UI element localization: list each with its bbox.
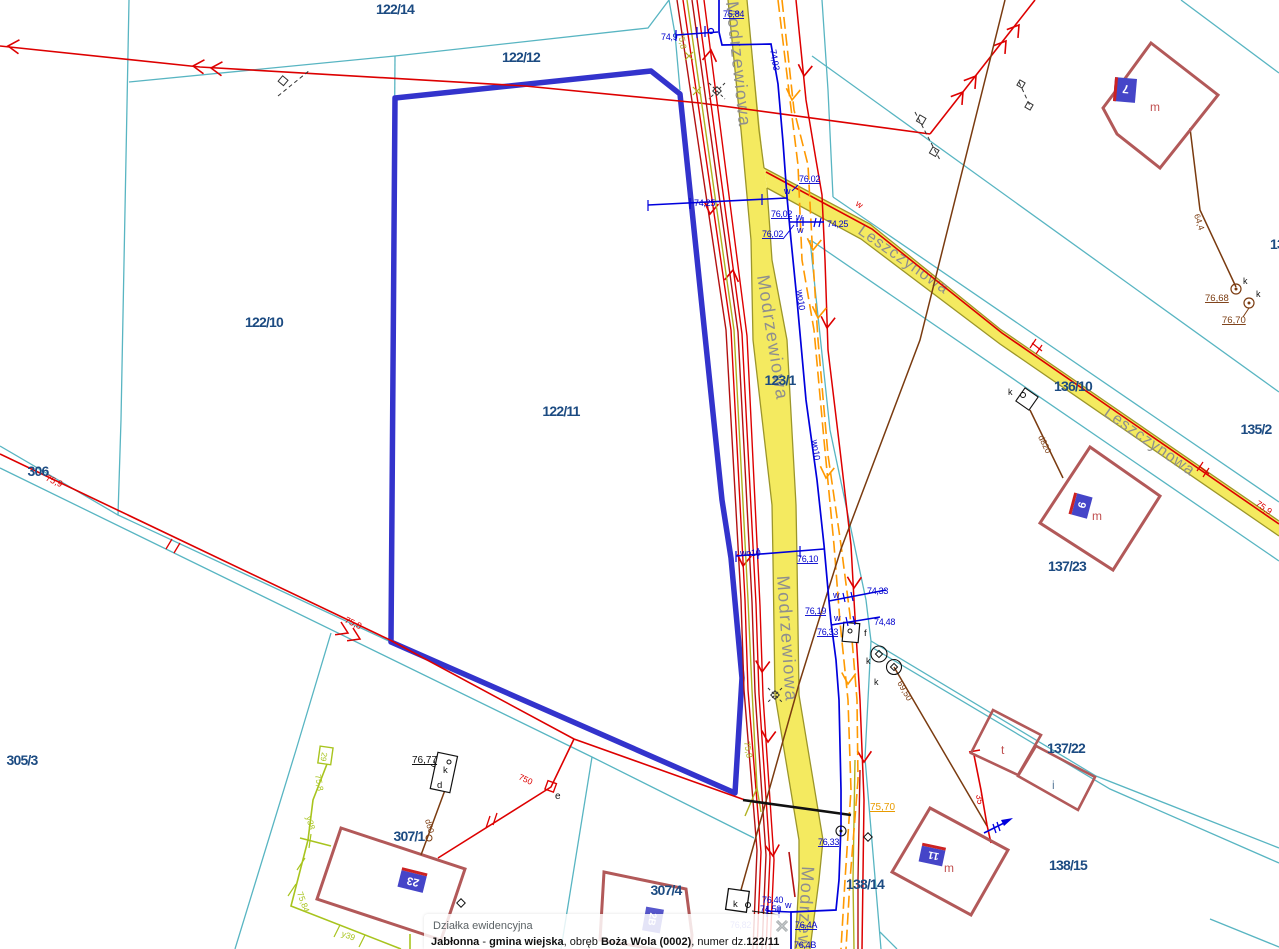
svg-text:76,68: 76,68 [1205,293,1229,304]
svg-text:74,48: 74,48 [874,617,895,627]
svg-text:76,33: 76,33 [817,627,838,637]
svg-text:76,02: 76,02 [799,174,820,184]
svg-text:w: w [833,613,841,623]
svg-text:k: k [1256,289,1261,299]
svg-text:74,25: 74,25 [694,198,715,208]
svg-text:m: m [944,861,954,875]
svg-text:w: w [832,590,840,600]
svg-text:k: k [443,765,448,776]
svg-text:e: e [555,791,561,802]
svg-text:305/3: 305/3 [6,752,38,768]
svg-text:w: w [783,186,791,196]
svg-text:136/10: 136/10 [1054,378,1093,394]
svg-text:306: 306 [28,463,50,479]
svg-text:74,50: 74,50 [760,904,781,914]
svg-text:123/1: 123/1 [764,372,796,388]
svg-text:w: w [795,212,803,222]
svg-text:w: w [784,900,792,910]
svg-text:76,4B: 76,4B [794,940,816,949]
svg-text:74,25: 74,25 [827,219,848,229]
svg-text:137/22: 137/22 [1047,740,1086,756]
svg-text:138/14: 138/14 [846,876,885,892]
svg-text:13: 13 [1270,236,1279,252]
svg-text:f: f [864,628,867,639]
svg-text:76,33: 76,33 [818,837,839,847]
svg-text:w: w [796,225,804,235]
svg-text:i: i [1052,778,1055,792]
svg-text:76,19: 76,19 [805,606,826,616]
svg-text:74,9: 74,9 [661,32,678,42]
svg-text:307/1: 307/1 [393,828,425,844]
svg-text:75,70: 75,70 [870,802,895,813]
svg-text:k: k [874,677,879,687]
svg-text:k: k [733,899,738,910]
svg-text:138/15: 138/15 [1049,857,1088,873]
svg-text:122/11: 122/11 [542,403,580,419]
svg-text:76,10: 76,10 [797,554,818,564]
svg-text:d: d [437,780,442,791]
svg-text:35: 35 [974,794,986,806]
svg-text:76,4A: 76,4A [795,920,817,930]
svg-text:122/10: 122/10 [245,314,284,330]
svg-text:76,70: 76,70 [1222,315,1246,326]
svg-text:135/2: 135/2 [1240,421,1272,437]
svg-text:76,02: 76,02 [771,209,792,219]
svg-text:75,84: 75,84 [723,9,744,19]
svg-text:76,77: 76,77 [412,755,437,766]
svg-text:122/14: 122/14 [376,1,415,17]
svg-text:k: k [1008,387,1013,397]
svg-text:m: m [1092,509,1102,523]
svg-text:122/12: 122/12 [502,49,541,65]
svg-text:k: k [1243,276,1248,286]
svg-text:m: m [1150,100,1160,114]
svg-text:74,33: 74,33 [867,586,888,596]
svg-text:76,02: 76,02 [762,229,783,239]
svg-text:wo10: wo10 [739,548,761,558]
svg-text:307/4: 307/4 [650,882,682,898]
svg-text:137/23: 137/23 [1048,558,1087,574]
svg-text:k: k [866,656,871,666]
